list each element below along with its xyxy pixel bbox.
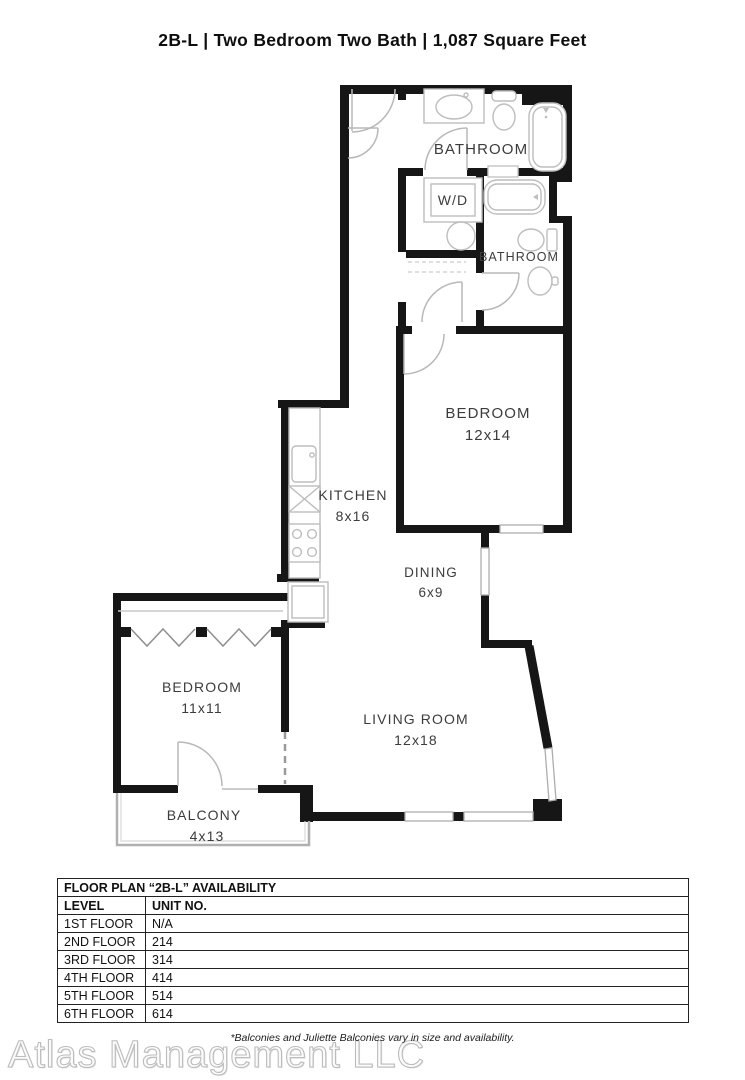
sink-icon [436,95,472,119]
balcony-door-icon [178,742,222,786]
sink2-icon [528,267,552,295]
table-row: 1ST FLOOR N/A [58,915,689,933]
cell-unit: 614 [146,1005,689,1023]
toilet2-icon [518,229,544,251]
table-header-row: LEVEL UNIT NO. [58,897,689,915]
window-dining [481,548,489,595]
window-bedroom-main [500,525,543,533]
window-living-diagonal [545,748,556,801]
cell-level: 6TH FLOOR [58,1005,146,1023]
bathroom-second-door-icon [482,273,519,310]
cell-level: 2ND FLOOR [58,933,146,951]
stove-icon [289,524,320,562]
col-header-level: LEVEL [58,897,146,915]
table-row: 4TH FLOOR 414 [58,969,689,987]
cell-level: 3RD FLOOR [58,951,146,969]
washer-drum-icon [447,222,475,250]
cell-unit: 214 [146,933,689,951]
hall-door-icon [422,282,462,322]
window-living-2 [464,812,533,821]
linen-shelves [408,262,466,272]
label-kitchen-dims: 8x16 [336,508,371,524]
table-row: 5TH FLOOR 514 [58,987,689,1005]
label-bedroom-main: BEDROOM [445,405,530,422]
cell-level: 5TH FLOOR [58,987,146,1005]
label-dining: DINING [404,565,458,580]
toilet2-tank-icon [547,229,557,251]
label-bathroom-second: BATHROOM [479,250,559,264]
table-title: FLOOR PLAN “2B-L” AVAILABILITY [58,879,689,897]
floor-plan: BATHROOM W/D BATHROOM BEDROOM 12x14 KITC… [0,0,745,870]
table-title-row: FLOOR PLAN “2B-L” AVAILABILITY [58,879,689,897]
label-bathroom-main: BATHROOM [434,141,528,158]
availability-table: FLOOR PLAN “2B-L” AVAILABILITY LEVEL UNI… [57,878,689,1023]
label-balcony-dims: 4x13 [190,828,225,844]
label-living-room-dims: 12x18 [394,732,438,748]
label-balcony: BALCONY [167,807,242,823]
cell-level: 4TH FLOOR [58,969,146,987]
label-living-room: LIVING ROOM [363,711,468,727]
entry-door-icon [352,89,395,132]
label-kitchen: KITCHEN [318,487,387,503]
label-bedroom-second-dims: 11x11 [181,700,223,716]
diagonal-wall [529,646,548,748]
label-bedroom-second: BEDROOM [162,679,242,695]
cased-opening [488,166,518,177]
label-dining-dims: 6x9 [418,585,443,600]
kitchen-sink-icon [292,446,316,482]
table-row: 6TH FLOOR 614 [58,1005,689,1023]
toilet-tank-icon [492,91,516,101]
label-bedroom-main-dims: 12x14 [465,427,511,444]
bedroom-main-door-icon [404,334,444,374]
window-living-1 [405,812,453,821]
col-header-unit-no: UNIT NO. [146,897,689,915]
cell-level: 1ST FLOOR [58,915,146,933]
table-row: 3RD FLOOR 314 [58,951,689,969]
cell-unit: 314 [146,951,689,969]
cell-unit: 514 [146,987,689,1005]
cell-unit: 414 [146,969,689,987]
table-row: 2ND FLOOR 214 [58,933,689,951]
toilet-icon [493,104,515,130]
cell-unit: N/A [146,915,689,933]
balcony-disclaimer: *Balconies and Juliette Balconies vary i… [0,1032,745,1044]
label-washer-dryer: W/D [438,192,469,208]
